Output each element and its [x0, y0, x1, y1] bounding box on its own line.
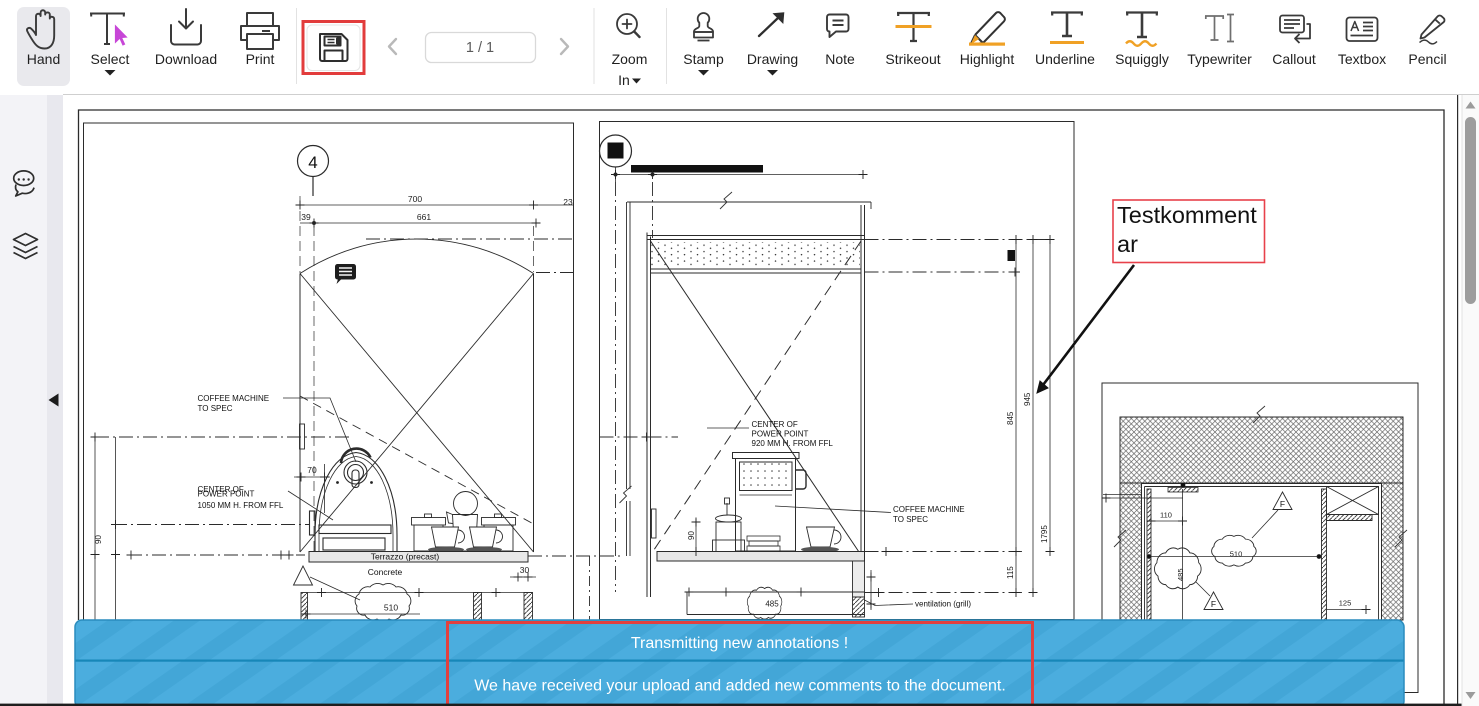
- svg-text:Terrazzo (precast): Terrazzo (precast): [371, 552, 440, 562]
- svg-text:F: F: [1211, 599, 1216, 609]
- svg-text:Drawing: Drawing: [747, 51, 798, 67]
- svg-text:Transmitting new annotations !: Transmitting new annotations !: [631, 635, 848, 652]
- svg-text:We have received your upload a: We have received your upload and added n…: [474, 678, 1006, 695]
- svg-text:700: 700: [408, 194, 422, 204]
- svg-text:485: 485: [765, 600, 779, 609]
- svg-text:4: 4: [308, 153, 317, 172]
- svg-text:POWER POINT: POWER POINT: [198, 490, 255, 499]
- svg-text:Typewriter: Typewriter: [1187, 51, 1252, 67]
- svg-text:920 MM H. FROM FFL: 920 MM H. FROM FFL: [752, 439, 834, 448]
- svg-text:510: 510: [1230, 550, 1243, 559]
- svg-text:Concrete: Concrete: [368, 567, 403, 577]
- svg-text:1 / 1: 1 / 1: [466, 40, 494, 56]
- svg-text:Zoom: Zoom: [612, 51, 648, 67]
- svg-text:Pencil: Pencil: [1408, 51, 1446, 67]
- svg-text:CENTER OF: CENTER OF: [752, 420, 798, 429]
- svg-text:Underline: Underline: [1035, 51, 1095, 67]
- svg-text:In: In: [618, 72, 630, 88]
- svg-text:ar: ar: [1117, 231, 1138, 257]
- svg-text:COFFEE MACHINE: COFFEE MACHINE: [893, 505, 965, 514]
- svg-text:Testkomment: Testkomment: [1117, 202, 1257, 228]
- svg-text:115: 115: [1006, 566, 1015, 579]
- svg-text:POWER POINT: POWER POINT: [752, 430, 809, 439]
- svg-text:125: 125: [1339, 599, 1352, 608]
- svg-text:Download: Download: [155, 51, 217, 67]
- svg-text:TO SPEC: TO SPEC: [893, 515, 928, 524]
- svg-text:Hand: Hand: [27, 51, 60, 67]
- svg-text:Print: Print: [246, 51, 275, 67]
- svg-text:1795: 1795: [1040, 525, 1049, 543]
- svg-text:Stamp: Stamp: [683, 51, 724, 67]
- svg-text:845: 845: [1006, 411, 1015, 425]
- svg-text:661: 661: [417, 212, 431, 222]
- svg-text:485: 485: [1176, 568, 1185, 581]
- svg-text:ventilation (grill): ventilation (grill): [915, 600, 971, 609]
- svg-text:90: 90: [687, 531, 696, 540]
- svg-text:TO SPEC: TO SPEC: [198, 404, 233, 413]
- svg-text:Callout: Callout: [1272, 51, 1316, 67]
- svg-text:39: 39: [301, 212, 311, 222]
- svg-text:90: 90: [94, 535, 103, 544]
- svg-text:510: 510: [384, 603, 398, 613]
- svg-text:23: 23: [563, 197, 573, 207]
- svg-text:F: F: [1280, 499, 1285, 509]
- svg-text:945: 945: [1023, 392, 1032, 406]
- svg-text:70: 70: [307, 465, 317, 475]
- svg-text:1050 MM H. FROM FFL: 1050 MM H. FROM FFL: [198, 501, 284, 510]
- svg-text:110: 110: [1160, 511, 1172, 520]
- svg-text:Squiggly: Squiggly: [1115, 51, 1169, 67]
- svg-text:Note: Note: [825, 51, 855, 67]
- svg-text:Select: Select: [91, 51, 130, 67]
- svg-text:Textbox: Textbox: [1338, 51, 1386, 67]
- svg-text:Strikeout: Strikeout: [885, 51, 940, 67]
- svg-text:Highlight: Highlight: [960, 51, 1015, 67]
- svg-text:COFFEE MACHINE: COFFEE MACHINE: [198, 394, 270, 403]
